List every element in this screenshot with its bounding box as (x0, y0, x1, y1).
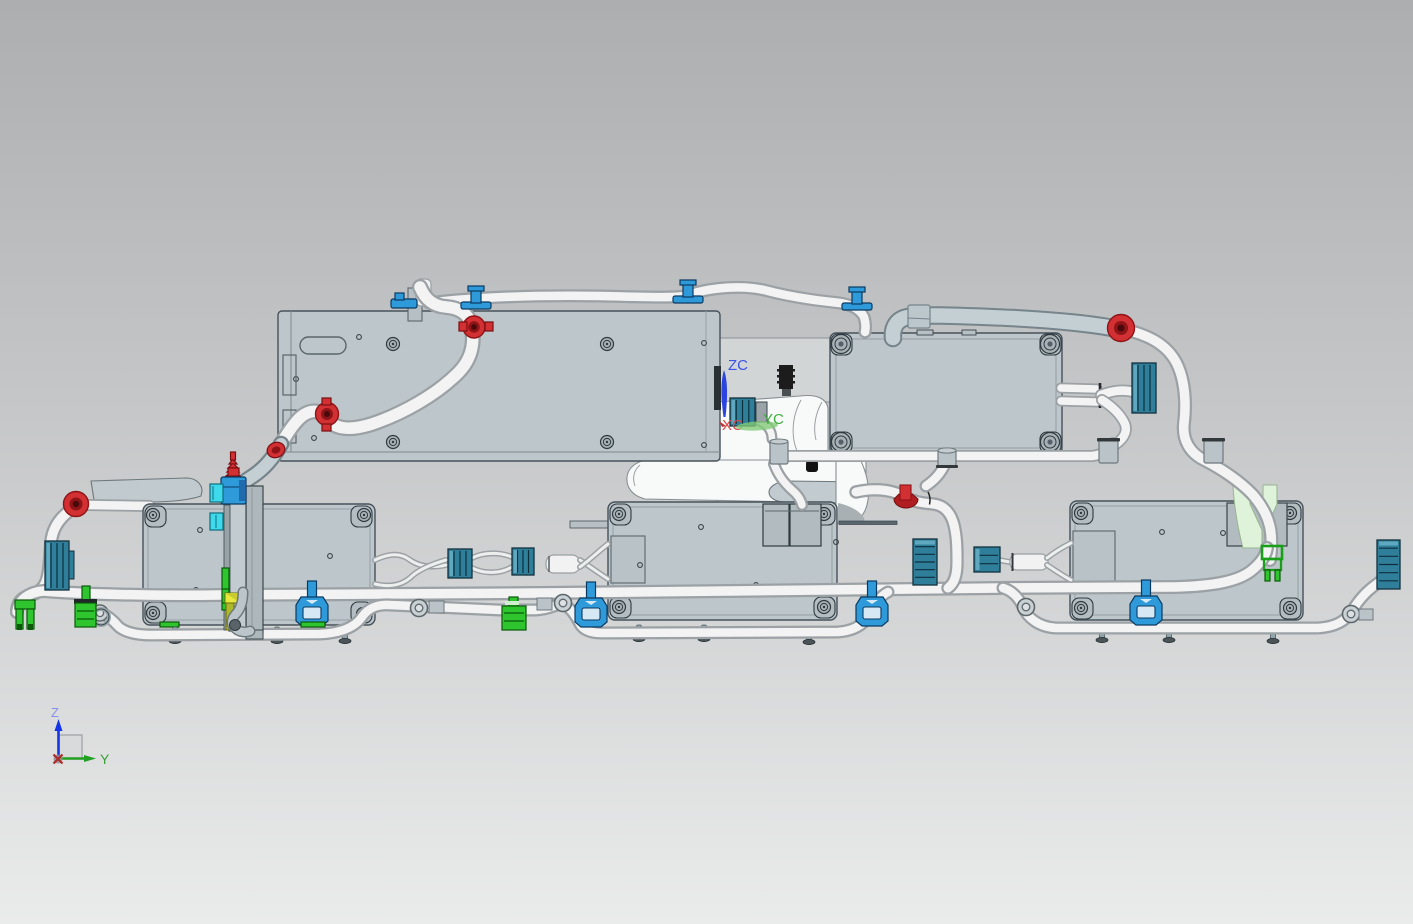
svg-text:Z: Z (51, 705, 59, 720)
svg-text:ZC: ZC (728, 357, 748, 374)
svg-text:Y: Y (100, 751, 110, 767)
svg-text:YC: YC (763, 411, 784, 428)
